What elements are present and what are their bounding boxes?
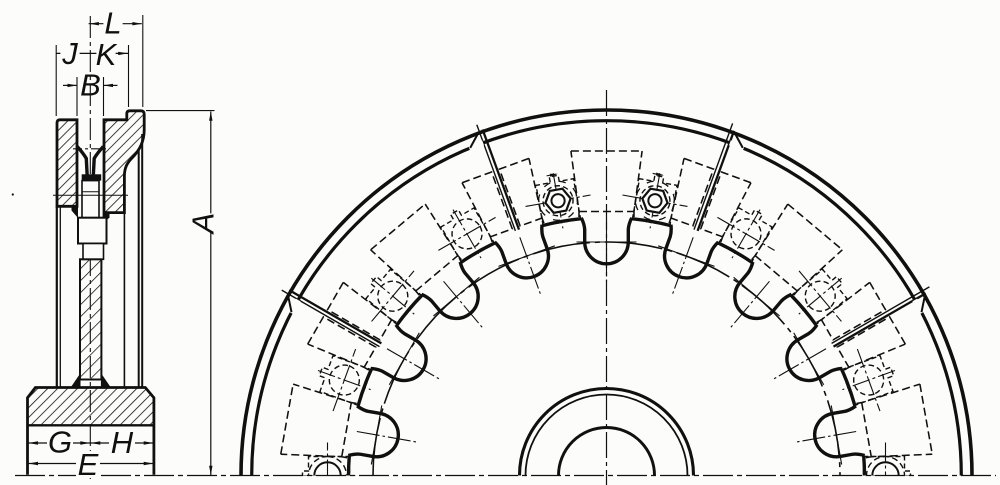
svg-text:L: L: [104, 6, 121, 41]
svg-text:H: H: [111, 425, 134, 460]
svg-text:G: G: [48, 425, 72, 460]
svg-text:E: E: [78, 447, 99, 482]
svg-text:J: J: [61, 36, 78, 71]
svg-text:A: A: [186, 213, 221, 236]
